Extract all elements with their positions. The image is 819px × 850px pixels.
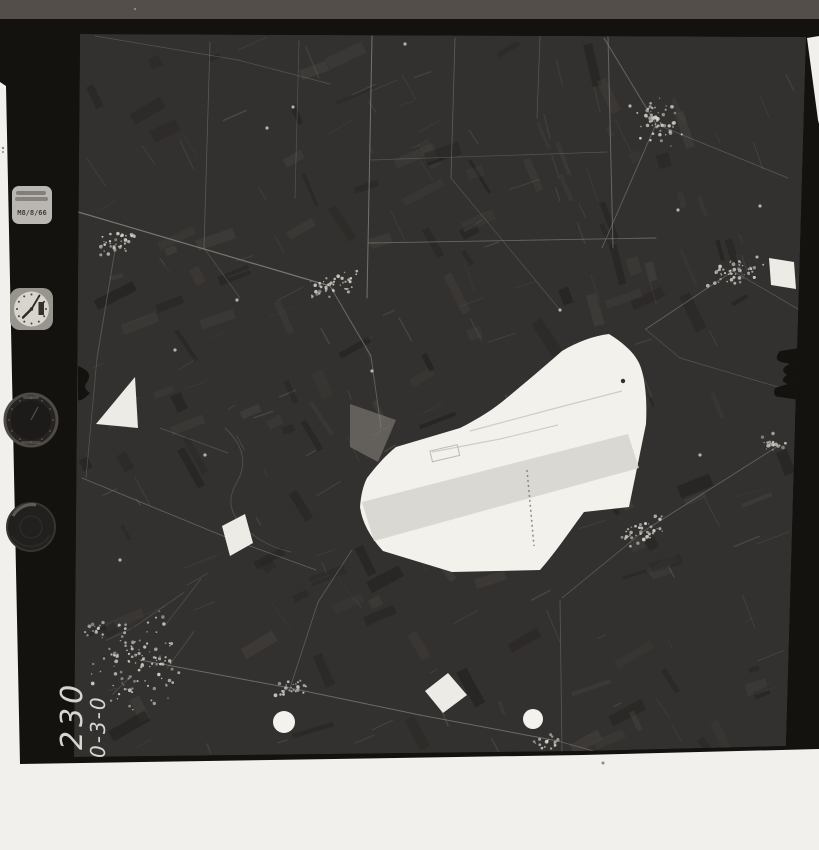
village-dot	[167, 697, 169, 699]
mat-speck	[602, 762, 605, 765]
village-dot	[146, 631, 148, 633]
village-dot	[125, 250, 127, 252]
village-dot	[303, 684, 306, 687]
mat-speck	[134, 8, 136, 10]
village-dot	[325, 288, 328, 291]
village-dot	[131, 687, 133, 689]
village-dot	[650, 114, 653, 117]
village-dot	[130, 233, 134, 237]
village-dot	[729, 270, 732, 273]
village-dot	[655, 123, 657, 125]
clock-tick	[23, 295, 25, 297]
village-dot	[764, 442, 765, 443]
village-dot	[766, 441, 768, 443]
village-dot	[664, 109, 666, 111]
farmstead-speck	[203, 453, 206, 456]
village-dot	[165, 684, 167, 686]
village-dot	[141, 655, 142, 656]
village-dot	[144, 680, 146, 682]
village-dot	[655, 126, 658, 129]
village-dot	[142, 657, 145, 660]
village-dot	[347, 290, 350, 293]
village-dot	[706, 284, 710, 288]
village-dot	[91, 673, 93, 675]
village-dot	[284, 687, 285, 688]
mat-speck	[2, 147, 4, 149]
village-dot	[674, 112, 677, 115]
village-dot	[649, 139, 651, 141]
village-dot	[661, 530, 663, 532]
village-dot	[649, 106, 650, 107]
village-dot	[131, 641, 135, 645]
village-dot	[645, 109, 648, 112]
village-dot	[153, 687, 156, 690]
village-dot	[640, 126, 642, 128]
village-dot	[648, 116, 652, 120]
village-dot	[652, 125, 653, 126]
village-dot	[120, 240, 122, 242]
village-dot	[99, 625, 100, 626]
village-dot	[646, 124, 650, 128]
altimeter-tick	[11, 408, 13, 410]
village-dot	[139, 639, 141, 641]
village-dot	[659, 97, 660, 98]
village-dot	[739, 281, 742, 284]
village-dot	[159, 655, 160, 656]
village-dot	[631, 526, 633, 528]
village-dot	[638, 526, 641, 529]
farmstead-speck	[676, 208, 679, 211]
village-dot	[161, 662, 164, 665]
village-dot	[636, 542, 639, 545]
farmstead-speck	[265, 126, 268, 129]
village-dot	[115, 243, 117, 245]
village-dot	[636, 112, 638, 114]
village-dot	[733, 268, 737, 272]
village-dot	[124, 248, 125, 249]
village-dot	[654, 517, 655, 518]
village-dot	[161, 678, 162, 679]
village-dot	[740, 270, 742, 272]
village-dot	[278, 682, 281, 685]
village-dot	[299, 680, 301, 682]
clock-tick	[31, 323, 33, 325]
village-dot	[665, 134, 667, 136]
village-dot	[340, 285, 341, 286]
village-dot	[155, 657, 157, 659]
village-dot	[320, 286, 323, 289]
village-dot	[771, 432, 774, 435]
village-dot	[177, 671, 180, 674]
village-dot	[101, 621, 104, 624]
village-dot	[143, 645, 146, 648]
village-dot	[274, 693, 278, 697]
compass-dial	[7, 503, 55, 551]
clock-tick	[16, 308, 18, 310]
village-dot	[120, 671, 123, 674]
village-dot	[118, 693, 120, 695]
village-dot	[718, 282, 720, 284]
village-dot	[99, 253, 102, 256]
village-dot	[621, 536, 624, 539]
village-dot	[121, 234, 124, 237]
clock-tick	[38, 321, 40, 323]
village-dot	[557, 738, 559, 740]
altimeter-tick	[41, 400, 43, 402]
village-dot	[110, 699, 112, 701]
village-dot	[656, 120, 659, 123]
village-dot	[114, 672, 117, 675]
village-dot	[102, 637, 103, 638]
village-dot	[124, 688, 126, 690]
village-dot	[649, 537, 651, 539]
village-dot	[282, 694, 284, 696]
village-dot	[658, 518, 661, 521]
village-dot	[116, 232, 120, 236]
village-dot	[295, 683, 297, 685]
dark-object-dot	[621, 379, 625, 383]
village-dot	[644, 522, 647, 525]
village-dot	[662, 113, 665, 116]
village-dot	[158, 610, 160, 612]
village-dot	[310, 281, 311, 282]
village-dot	[147, 685, 149, 687]
terrain-base	[74, 34, 806, 757]
altimeter-tick	[49, 430, 51, 432]
village-dot	[115, 660, 117, 662]
village-dot	[84, 631, 86, 633]
village-dot	[134, 236, 136, 238]
village-dot	[730, 278, 734, 282]
village-dot	[168, 679, 172, 683]
village-dot	[348, 288, 349, 289]
village-dot	[312, 296, 313, 297]
village-dot	[126, 688, 128, 690]
village-dot	[131, 647, 134, 650]
village-dot	[133, 680, 136, 683]
village-dot	[107, 252, 111, 256]
village-dot	[738, 276, 742, 280]
village-dot	[159, 663, 162, 666]
data-plate-smudge	[15, 197, 48, 201]
village-dot	[751, 271, 753, 273]
village-dot	[318, 282, 321, 285]
village-dot	[126, 649, 128, 651]
village-dot	[103, 657, 105, 659]
village-dot	[150, 699, 152, 701]
village-dot	[156, 663, 158, 665]
village-dot	[141, 660, 142, 661]
clock-tick	[43, 315, 45, 317]
village-dot	[99, 245, 103, 249]
village-dot	[128, 661, 130, 663]
village-dot	[649, 525, 652, 528]
village-dot	[347, 278, 350, 281]
village-dot	[627, 528, 629, 530]
village-dot	[625, 531, 627, 533]
village-dot	[724, 272, 726, 274]
village-dot	[644, 114, 648, 118]
village-dot	[120, 677, 123, 680]
village-dot	[158, 657, 161, 660]
village-dot	[656, 528, 657, 529]
village-dot	[672, 126, 674, 128]
village-dot	[747, 272, 750, 275]
village-dot	[541, 747, 544, 750]
village-dot	[733, 276, 736, 279]
village-dot	[110, 653, 112, 655]
village-dot	[103, 250, 105, 252]
village-dot	[325, 277, 327, 279]
village-dot	[105, 242, 107, 244]
village-dot	[715, 272, 717, 274]
village-dot	[650, 120, 653, 123]
village-dot	[733, 282, 736, 285]
frame-number-marking: 230	[55, 681, 90, 750]
village-dot	[554, 743, 555, 744]
village-dot	[533, 740, 536, 743]
village-dot	[658, 527, 661, 530]
aerial-photo-frame: 230 0-3-0 M8/8/66	[0, 0, 819, 850]
village-dot	[753, 276, 756, 279]
village-dot	[550, 747, 552, 749]
village-dot	[302, 692, 304, 694]
village-dot	[660, 122, 661, 123]
village-dot	[772, 444, 775, 447]
village-dot	[660, 139, 663, 142]
mat-speck	[2, 151, 4, 153]
aerial-image	[74, 34, 819, 785]
farmstead-speck	[698, 453, 701, 456]
village-dot	[313, 283, 317, 287]
village-dot	[654, 115, 657, 118]
village-dot	[151, 663, 153, 665]
village-dot	[544, 746, 546, 748]
village-dot	[102, 633, 104, 635]
clock-window	[39, 302, 45, 315]
village-dot	[91, 682, 95, 686]
village-dot	[109, 245, 112, 248]
village-dot	[128, 688, 132, 692]
village-dot	[645, 535, 649, 539]
village-dot	[538, 738, 541, 741]
village-dot	[94, 626, 95, 627]
village-dot	[728, 273, 730, 275]
village-dot	[153, 702, 156, 705]
village-dot	[102, 236, 104, 238]
farmstead-speck	[118, 558, 121, 561]
village-dot	[135, 654, 137, 656]
farmstead-speck	[235, 298, 238, 301]
village-dot	[639, 530, 643, 534]
village-dot	[629, 545, 632, 548]
village-dot	[650, 111, 651, 112]
village-dot	[652, 132, 655, 135]
village-dot	[124, 627, 127, 630]
village-dot	[342, 282, 344, 284]
village-dot	[659, 130, 661, 132]
village-dot	[630, 536, 633, 539]
village-dot	[121, 682, 123, 684]
village-dot	[730, 272, 733, 275]
photo-scan: 230 0-3-0 M8/8/66	[0, 0, 819, 850]
village-dot	[164, 660, 166, 662]
farmstead-speck	[403, 42, 406, 45]
village-dot	[784, 442, 787, 445]
village-dot	[141, 663, 143, 665]
village-dot	[730, 260, 732, 262]
village-dot	[721, 274, 723, 276]
village-dot	[654, 107, 656, 109]
village-dot	[333, 278, 336, 281]
village-dot	[648, 532, 651, 535]
village-dot	[86, 634, 88, 636]
altimeter-tick	[8, 419, 10, 421]
village-dot	[726, 281, 728, 283]
village-dot	[128, 653, 130, 655]
village-dot	[333, 281, 335, 283]
village-dot	[125, 235, 127, 237]
altimeter-tick	[11, 430, 13, 432]
village-dot	[315, 292, 319, 296]
village-dot	[719, 278, 721, 280]
village-dot	[328, 283, 331, 286]
village-dot	[665, 105, 666, 106]
village-dot	[344, 288, 346, 290]
village-dot	[639, 523, 642, 526]
village-dot	[769, 443, 772, 446]
village-dot	[109, 242, 111, 244]
village-dot	[663, 124, 666, 127]
village-dot	[344, 272, 346, 274]
village-dot	[88, 624, 92, 628]
farmstead-speck	[173, 348, 176, 351]
village-dot	[293, 684, 294, 685]
village-dot	[171, 668, 174, 671]
village-dot	[279, 693, 282, 696]
village-dot	[772, 442, 774, 444]
village-dot	[169, 645, 171, 647]
village-dot	[288, 689, 290, 691]
village-dot	[332, 284, 334, 286]
village-dot	[157, 673, 160, 676]
village-dot	[756, 256, 759, 259]
village-dot	[554, 745, 556, 747]
village-dot	[642, 538, 646, 542]
village-dot	[140, 666, 142, 668]
village-dot	[546, 740, 548, 742]
village-dot	[355, 273, 357, 275]
village-dot	[296, 686, 297, 687]
altimeter-tick	[19, 438, 21, 440]
fiducial-dot	[523, 709, 543, 729]
data-plate-smudge	[16, 191, 46, 195]
village-dot	[648, 523, 649, 524]
village-dot	[137, 652, 140, 655]
village-dot	[717, 270, 718, 271]
village-dot	[781, 446, 785, 450]
village-dot	[171, 681, 174, 684]
village-dot	[293, 689, 295, 691]
village-dot	[130, 645, 132, 647]
village-dot	[124, 243, 126, 245]
village-dot	[135, 662, 136, 663]
village-dot	[635, 535, 637, 537]
village-dot	[113, 654, 116, 657]
village-dot	[735, 273, 737, 275]
farmstead-speck	[558, 308, 561, 311]
village-dot	[658, 112, 660, 114]
village-dot	[713, 281, 716, 284]
village-dot	[103, 243, 106, 246]
village-dot	[628, 536, 629, 537]
village-dot	[156, 660, 157, 661]
village-dot	[740, 262, 741, 263]
village-dot	[109, 233, 112, 236]
altimeter-tick	[19, 400, 21, 402]
village-dot	[113, 247, 115, 249]
bright-field	[769, 258, 796, 289]
village-dot	[332, 289, 334, 291]
village-dot	[96, 631, 97, 632]
village-dot	[777, 444, 780, 447]
village-dot	[146, 642, 148, 644]
village-dot	[147, 621, 149, 623]
village-dot	[661, 515, 663, 517]
village-dot	[290, 690, 292, 692]
village-dot	[323, 281, 324, 282]
farmstead-speck	[291, 105, 294, 108]
village-dot	[294, 690, 296, 692]
village-dot	[131, 655, 134, 658]
village-dot	[92, 663, 94, 665]
village-dot	[658, 133, 661, 136]
altimeter-tick	[41, 438, 43, 440]
farmstead-speck	[758, 204, 761, 207]
village-dot	[100, 671, 102, 673]
village-dot	[649, 102, 652, 105]
village-dot	[136, 680, 138, 682]
village-dot	[654, 514, 657, 517]
village-dot	[670, 145, 671, 146]
village-dot	[97, 627, 99, 629]
village-dot	[761, 435, 764, 438]
village-dot	[286, 684, 287, 685]
village-dot	[669, 131, 673, 135]
village-dot	[124, 239, 128, 243]
village-dot	[668, 124, 671, 127]
film-top-band	[0, 0, 819, 19]
village-dot	[772, 449, 774, 451]
village-dot	[722, 268, 724, 270]
village-dot	[112, 685, 114, 687]
village-dot	[629, 534, 631, 536]
clock-center	[30, 307, 33, 310]
village-dot	[165, 642, 167, 644]
village-dot	[117, 653, 119, 655]
village-dot	[124, 623, 127, 626]
village-dot	[629, 531, 632, 534]
clock-tick	[23, 321, 25, 323]
fiducial-dot	[273, 711, 295, 733]
village-dot	[128, 705, 131, 708]
data-plate-text: M8/8/66	[17, 209, 47, 217]
village-dot	[344, 281, 346, 283]
village-dot	[738, 264, 740, 266]
village-dot	[131, 691, 133, 693]
village-dot	[138, 649, 139, 650]
village-dot	[161, 615, 164, 618]
